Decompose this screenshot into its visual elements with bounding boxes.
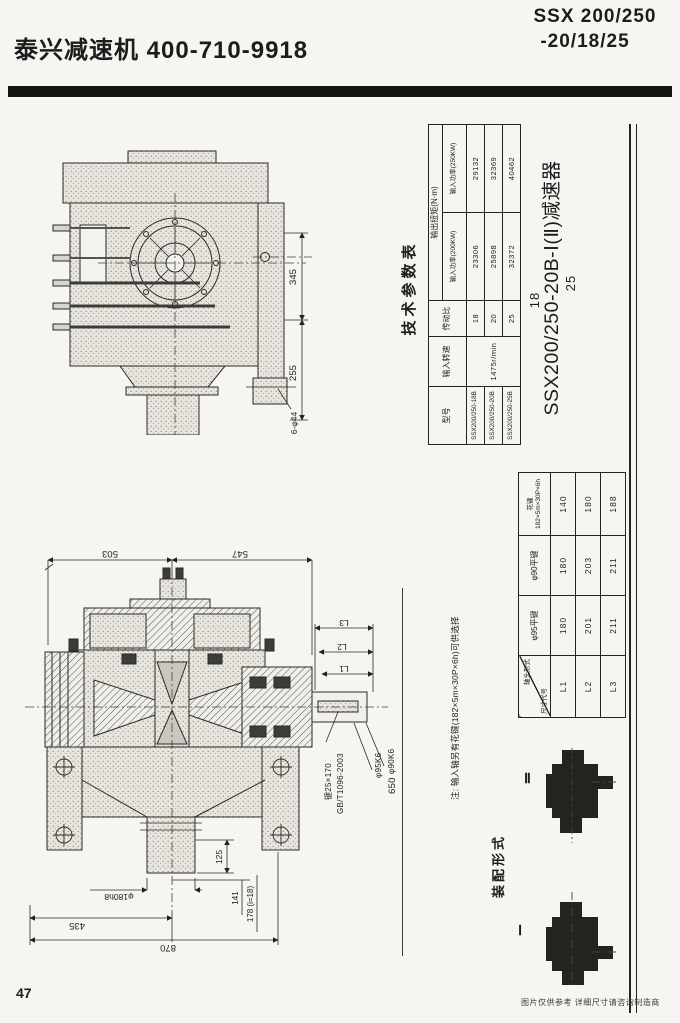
col-power-200: 输入功率(200KW) bbox=[443, 213, 467, 301]
assembly-form-1-label: Ⅰ bbox=[518, 922, 522, 939]
code-cell: L2 bbox=[576, 656, 601, 718]
dim-255-label: 255 bbox=[288, 365, 299, 381]
col-key-95: φ95平键 bbox=[519, 596, 551, 656]
assembly-forms-title: 装配形式 bbox=[488, 826, 508, 898]
dim-435-label: 435 bbox=[69, 920, 85, 931]
model-cell: SSX200/250-20B bbox=[485, 387, 503, 445]
col-ratio: 传动比 bbox=[429, 301, 467, 337]
model-cell: SSX200/250-18B bbox=[467, 387, 485, 445]
col-torque: 输出扭矩(N·m) bbox=[429, 125, 443, 301]
torque-250-cell: 29132 bbox=[467, 125, 485, 213]
params-table-title: 技术参数表 bbox=[398, 226, 424, 350]
col-power-250: 输入功率(250KW) bbox=[443, 125, 467, 213]
params-row-20: SSX200/250-20B 20 25898 32369 bbox=[485, 125, 503, 445]
dims-row-L3: L3 211 211 188 bbox=[601, 473, 626, 718]
product-title-block: 18 SSX200/250-20B-Ⅰ(Ⅱ)减速器 25 bbox=[528, 128, 608, 448]
dim-870-label: 870 bbox=[160, 942, 176, 953]
torque-200-cell: 25898 bbox=[485, 213, 503, 301]
product-title: SSX200/250-20B-Ⅰ(Ⅱ)减速器 bbox=[542, 128, 563, 448]
torque-250-cell: 40462 bbox=[503, 125, 521, 213]
code-cell: L3 bbox=[601, 656, 626, 718]
scanned-datasheet-page: 泰兴减速机 400-710-9918 SSX 200/250 -20/18/25 bbox=[0, 0, 680, 1023]
ratio-cell: 18 bbox=[467, 301, 485, 337]
col-model: 型号 bbox=[429, 387, 467, 445]
model-code-line1: SSX 200/250 bbox=[520, 6, 670, 28]
dim-L3-label: L3 bbox=[339, 618, 349, 628]
dim-503-label: 503 bbox=[102, 548, 118, 559]
spline-line2: 182×5m×30P×6h bbox=[535, 473, 543, 535]
params-row-18: SSX200/250-18B 1475r/min 18 23306 29132 bbox=[467, 125, 485, 445]
dim-L2-label: L2 bbox=[337, 642, 347, 652]
assembly-form-2-silhouette bbox=[542, 748, 618, 843]
v95-cell: 201 bbox=[576, 596, 601, 656]
col-spline: 花键 182×5m×30P×6h bbox=[519, 473, 551, 536]
v90-cell: 180 bbox=[551, 536, 576, 596]
dim-650-label: 650 bbox=[387, 762, 400, 794]
col-key-90: φ90平键 bbox=[519, 536, 551, 596]
code-cell: L1 bbox=[551, 656, 576, 718]
corner-header: 轴头形式 尺寸代号 bbox=[519, 656, 551, 718]
speed-cell: 1475r/min bbox=[467, 337, 521, 387]
torque-200-cell: 23306 bbox=[467, 213, 485, 301]
dia-180-label: φ180h8 bbox=[104, 892, 133, 902]
ratio-cell: 20 bbox=[485, 301, 503, 337]
assembly-form-2-label: Ⅱ bbox=[524, 770, 531, 787]
disclaimer-text: 图片仅供参考 详细尺寸请咨询制造商 bbox=[521, 997, 660, 1008]
ratio-alt-bottom: 25 bbox=[564, 128, 578, 448]
dims-table: 轴头形式 尺寸代号 φ95平键 φ90平键 花键 182×5m×30P×6h L… bbox=[518, 472, 626, 718]
v95-cell: 180 bbox=[551, 596, 576, 656]
dim-178-label: 178 (i=18) bbox=[246, 886, 255, 923]
dim-650-line bbox=[402, 588, 403, 956]
dim-547-label: 547 bbox=[232, 548, 248, 559]
gearbox-top-view-drawing: 345 255 6-φ44 bbox=[50, 125, 320, 435]
torque-250-cell: 32369 bbox=[485, 125, 503, 213]
key-standard-label: GB/T1096-2003 bbox=[336, 738, 348, 814]
header-divider-bar bbox=[8, 86, 672, 97]
params-row-25: SSX200/250-25B 25 32372 40462 bbox=[503, 125, 521, 445]
ratio-alt-top: 18 bbox=[528, 128, 542, 448]
dims-row-L2: L2 201 203 180 bbox=[576, 473, 601, 718]
v90-cell: 203 bbox=[576, 536, 601, 596]
spline-option-note: 注: 输入轴另有花键(182×5m×30P×6h)可供选择 bbox=[449, 588, 467, 800]
bolt-holes-label: 6-φ44 bbox=[289, 411, 299, 434]
dim-125-label: 125 bbox=[214, 850, 224, 864]
page-number: 47 bbox=[16, 985, 32, 1001]
dia-95-label: φ95K6 bbox=[374, 734, 386, 778]
model-code-line2: -20/18/25 bbox=[520, 31, 650, 53]
spline-cell: 140 bbox=[551, 473, 576, 536]
dim-141-label: 141 bbox=[231, 891, 240, 905]
dims-row-L1: L1 180 180 140 bbox=[551, 473, 576, 718]
ratio-cell: 25 bbox=[503, 301, 521, 337]
dim-L1-label: L1 bbox=[339, 664, 349, 674]
model-cell: SSX200/250-25B bbox=[503, 387, 521, 445]
shaft-stubs bbox=[53, 225, 70, 330]
spline-cell: 188 bbox=[601, 473, 626, 536]
corner-bottom-label: 尺寸代号 bbox=[538, 688, 548, 714]
corner-top-label: 轴头形式 bbox=[521, 659, 531, 685]
frame-border-line-outer bbox=[629, 124, 631, 1013]
key-size-label: 键25×170 bbox=[323, 742, 335, 800]
spline-cell: 180 bbox=[576, 473, 601, 536]
company-brand-phone: 泰兴减速机 400-710-9918 bbox=[14, 30, 308, 65]
v95-cell: 211 bbox=[601, 596, 626, 656]
v90-cell: 211 bbox=[601, 536, 626, 596]
dims-table-wrapper: 轴头形式 尺寸代号 φ95平键 φ90平键 花键 182×5m×30P×6h L… bbox=[518, 473, 625, 718]
params-table-wrapper: 型号 输入转速 传动比 输出扭矩(N·m) 输入功率(200KW) 输入功率(2… bbox=[428, 125, 520, 445]
dim-345-label: 345 bbox=[288, 269, 299, 285]
col-speed: 输入转速 bbox=[429, 337, 467, 387]
spline-line1: 花键 bbox=[527, 473, 535, 535]
params-table: 型号 输入转速 传动比 输出扭矩(N·m) 输入功率(200KW) 输入功率(2… bbox=[428, 124, 521, 445]
torque-200-cell: 32372 bbox=[503, 213, 521, 301]
frame-border-line-inner bbox=[636, 124, 637, 1013]
assembly-form-1-silhouette bbox=[542, 892, 618, 987]
